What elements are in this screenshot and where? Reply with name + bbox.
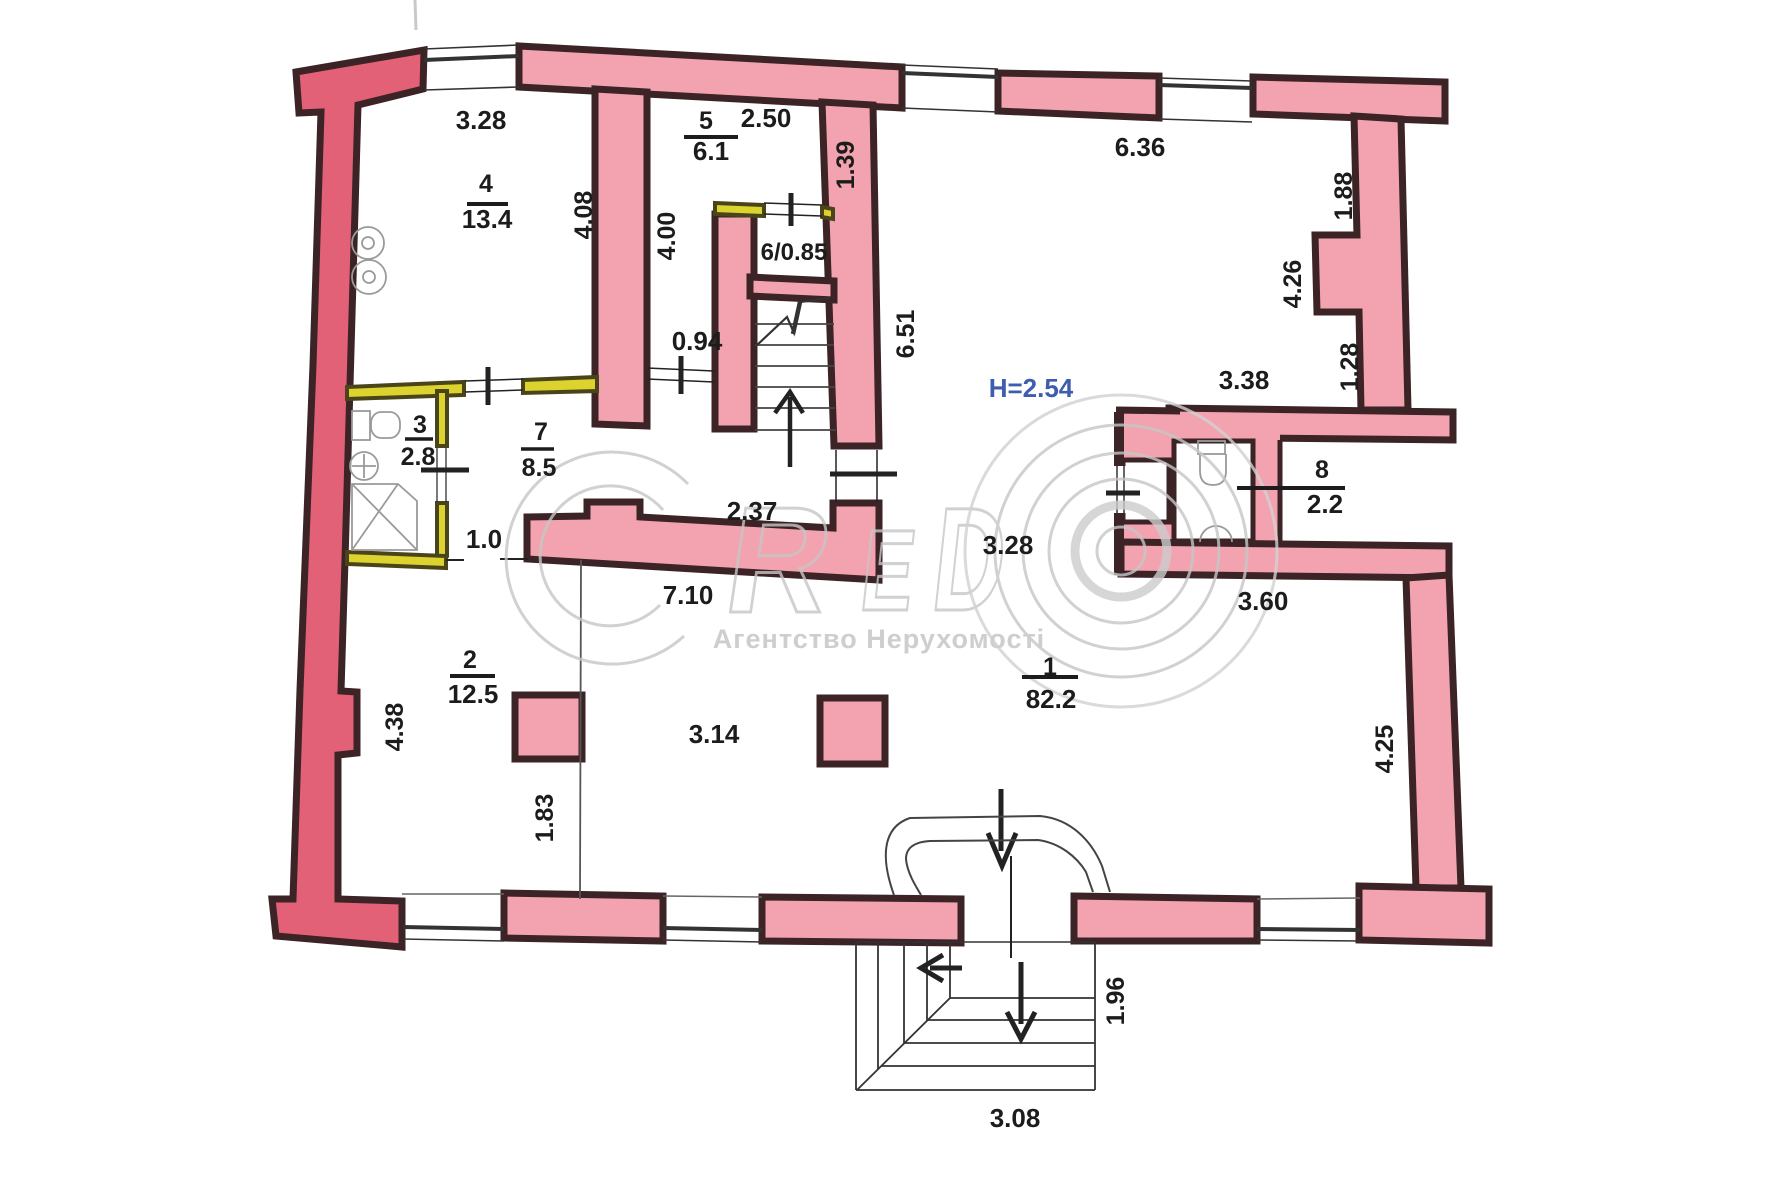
svg-text:3.38: 3.38 [1219, 365, 1270, 395]
svg-text:13.4: 13.4 [462, 204, 513, 234]
svg-text:1.0: 1.0 [466, 524, 502, 554]
svg-text:4.08: 4.08 [570, 191, 598, 240]
svg-text:4.26: 4.26 [1279, 260, 1307, 309]
svg-text:5: 5 [699, 107, 713, 135]
svg-text:1.28: 1.28 [1336, 343, 1364, 392]
svg-text:1.96: 1.96 [1102, 977, 1130, 1026]
svg-text:4.00: 4.00 [653, 212, 681, 261]
svg-text:6.51: 6.51 [892, 310, 920, 359]
svg-text:6.1: 6.1 [693, 136, 729, 166]
svg-text:8.5: 8.5 [522, 454, 557, 482]
svg-text:3.28: 3.28 [456, 105, 507, 135]
svg-text:3.14: 3.14 [689, 719, 740, 749]
svg-text:Агентство Нерухомості: Агентство Нерухомості [713, 624, 1045, 654]
svg-text:6.36: 6.36 [1115, 132, 1166, 162]
svg-text:1.83: 1.83 [531, 794, 559, 843]
svg-text:3: 3 [413, 411, 427, 439]
svg-text:0.94: 0.94 [672, 326, 723, 356]
svg-text:12.5: 12.5 [448, 679, 499, 709]
svg-text:2: 2 [463, 646, 477, 674]
svg-text:82.2: 82.2 [1026, 684, 1077, 714]
svg-text:2.2: 2.2 [1307, 489, 1343, 519]
svg-text:4.38: 4.38 [381, 703, 409, 752]
svg-text:3.28: 3.28 [983, 530, 1034, 560]
svg-text:3.60: 3.60 [1238, 586, 1289, 616]
svg-text:H=2.54: H=2.54 [989, 373, 1074, 403]
svg-text:2.50: 2.50 [741, 103, 792, 133]
svg-text:1.39: 1.39 [832, 141, 860, 190]
svg-text:6/0.85: 6/0.85 [761, 239, 828, 266]
svg-text:1.88: 1.88 [1330, 172, 1358, 221]
svg-text:2.37: 2.37 [727, 496, 778, 526]
svg-text:4.25: 4.25 [1371, 725, 1399, 774]
svg-text:2.8: 2.8 [401, 443, 436, 471]
svg-text:4: 4 [479, 170, 493, 198]
svg-text:7.10: 7.10 [663, 580, 714, 610]
svg-text:3.08: 3.08 [990, 1103, 1041, 1133]
svg-text:7: 7 [534, 418, 548, 446]
svg-text:8: 8 [1315, 456, 1329, 484]
